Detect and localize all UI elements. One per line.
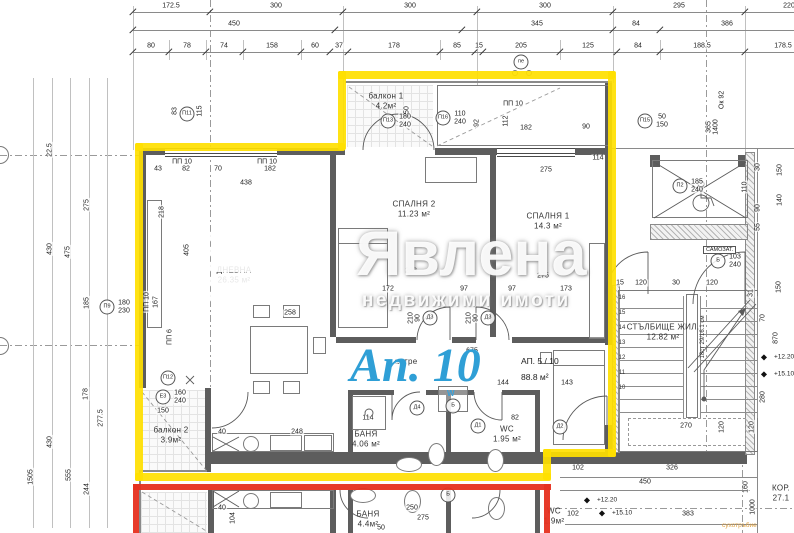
- yellow-outline-segment: [338, 71, 615, 79]
- dim-label: 182: [519, 125, 533, 132]
- yellow-outline-segment: [608, 71, 616, 457]
- logo-bar: [203, 246, 329, 257]
- dim-label: 120: [705, 280, 719, 287]
- room-name: СПАЛНЯ 2: [393, 200, 436, 210]
- room-area: 12.82 м²: [627, 333, 700, 343]
- dim-label: 258: [283, 310, 297, 317]
- dim-label: 248: [290, 429, 304, 436]
- tag-circle: Б: [446, 399, 461, 414]
- tag-size: 240: [173, 398, 187, 405]
- red-outline-segment: [133, 484, 139, 533]
- room-label: WC1.95 м²: [493, 425, 521, 446]
- dim-label: 82: [181, 166, 191, 173]
- dim-label: 114: [591, 155, 604, 162]
- stair-step-number: 13: [619, 340, 626, 346]
- dim-line: [133, 52, 794, 53]
- dim-label: 140: [777, 193, 784, 207]
- logo-bar: [203, 276, 329, 287]
- self-closing-door-label: САМОЗАТ.: [703, 246, 736, 254]
- apartment-number-label: Ап. 10: [350, 338, 481, 393]
- stair-steps-note: 18ст 29/16.1 см: [700, 316, 706, 359]
- dashed-diagonal: [142, 492, 208, 532]
- dim-label: 60: [310, 43, 320, 50]
- elevation-marker-icon: ◆: [599, 509, 605, 518]
- dim-label: 78: [182, 43, 192, 50]
- dim-label: 102: [566, 511, 580, 518]
- tag-size: 90: [415, 313, 422, 323]
- dim-label: ПП 6: [167, 328, 174, 346]
- dim-label: 172.5: [161, 3, 181, 10]
- dim-label: 300: [538, 3, 552, 10]
- tag-circle: Д1: [471, 419, 486, 434]
- dim-label: 40: [217, 505, 227, 512]
- fridge-cross: [213, 437, 239, 451]
- dim-label: 31: [748, 288, 755, 298]
- dim-label: 220: [782, 3, 794, 10]
- stair-step-number: 16: [619, 295, 626, 301]
- stair-step-number: 12: [619, 355, 626, 361]
- dim-label: 167: [153, 295, 160, 309]
- stair-step-number: 14: [619, 325, 626, 331]
- dim-label: 102: [571, 465, 585, 472]
- dim-label: 43: [153, 166, 163, 173]
- dim-label: 22.5: [47, 142, 54, 158]
- room-label: БАНЯ4.06 м²: [352, 430, 380, 451]
- watermark-brand: Явлена: [356, 218, 587, 290]
- tag-circle: Д2: [553, 420, 568, 435]
- elevation-marker-icon: ◆: [761, 353, 767, 362]
- dim-label: 112: [503, 114, 510, 127]
- dim-label: 1000: [750, 498, 757, 516]
- tag-size: 185: [690, 179, 704, 186]
- yellow-outline-segment: [135, 143, 143, 481]
- room-name: WC: [493, 425, 521, 435]
- dim-label: 15: [474, 43, 484, 50]
- yavlena-logo: [203, 231, 329, 306]
- room-area: 4.06 м²: [352, 440, 380, 450]
- dim-label: 185: [84, 296, 91, 310]
- logo-bar: [203, 231, 329, 242]
- room-label: СТЪЛБИЩЕ ЖИЛ.12.82 м²: [627, 323, 700, 344]
- dim-label: 55: [755, 222, 762, 232]
- dim-label: 295: [672, 3, 686, 10]
- dim-label: 326: [665, 465, 679, 472]
- elevation-label: +12.20: [774, 354, 794, 361]
- dim-label: 74: [219, 43, 229, 50]
- dim-label: 70: [213, 166, 223, 173]
- tag-circle: Д3: [423, 311, 438, 326]
- logo-bar: [203, 291, 329, 302]
- dim-label: 1505: [28, 468, 35, 486]
- dim-label: 365: [706, 120, 713, 134]
- dim-label: 188.5: [692, 43, 712, 50]
- unit-area-label: 88.8 м²: [521, 372, 549, 382]
- elevation-marker-icon: ◆: [761, 370, 767, 379]
- tag-size: 230: [117, 308, 131, 315]
- floor-plan-canvas: Явлена недвижими имоти Ап. 10 АП. 5 / 10…: [0, 0, 794, 533]
- stair-arrow-start: [702, 397, 706, 401]
- tag-size: 240: [690, 187, 704, 194]
- elevation-label: +12.20: [597, 497, 617, 504]
- dim-label: 182: [263, 166, 277, 173]
- door-arc: [212, 392, 248, 428]
- wheelchair-icon: [693, 181, 714, 211]
- yellow-outline-segment: [135, 473, 551, 481]
- dim-label: 270: [679, 423, 693, 430]
- dim-label: 110: [742, 180, 749, 193]
- dim-label: 120: [749, 420, 756, 434]
- dim-label: 84: [633, 43, 643, 50]
- yellow-outline-segment: [338, 71, 346, 150]
- tag-circle: П11: [180, 107, 195, 122]
- dim-label: 250: [405, 505, 419, 512]
- unit-code-label: АП. 5 / 10: [521, 356, 559, 366]
- dim-label: 300: [269, 3, 283, 10]
- dim-label: 178.5: [773, 43, 793, 50]
- dim-label: Ок 92: [719, 90, 726, 110]
- room-name: балкон 2: [153, 426, 188, 436]
- dim-line: [560, 477, 757, 478]
- stair-step-number: 15: [619, 310, 626, 316]
- dim-label: 405: [184, 243, 191, 257]
- dim-label: 300: [403, 3, 417, 10]
- tag-size: 240: [453, 119, 467, 126]
- dry-riser-label: сухотръбие: [722, 522, 757, 529]
- elevation-label: +15.10: [612, 510, 632, 517]
- dim-label: 120: [634, 280, 648, 287]
- room-label: БАНЯ4.4м²: [356, 510, 379, 531]
- tag-circle: Е3: [156, 390, 171, 405]
- dim-label: 40: [217, 429, 227, 436]
- dim-label: 280: [760, 390, 767, 404]
- tag-circle: П9: [100, 300, 115, 315]
- stair-step-number: 11: [619, 370, 625, 376]
- dim-label: 555: [66, 468, 73, 482]
- yellow-outline-segment: [135, 143, 345, 151]
- red-outline-segment: [133, 484, 551, 490]
- dim-label: 870: [773, 331, 780, 345]
- dim-label: 83: [172, 106, 179, 116]
- elevation-label: +15.10: [774, 371, 794, 378]
- dim-label: 438: [239, 180, 253, 187]
- tag-size: 160: [173, 390, 187, 397]
- tag-size: 180: [117, 300, 131, 307]
- entrance-door-arc: [563, 396, 607, 440]
- dim-label: 275: [416, 515, 430, 522]
- room-area: 27.1: [772, 494, 790, 504]
- tag-circle: Д3: [481, 311, 496, 326]
- dim-label: 275: [539, 167, 553, 174]
- tag-circle: Б: [711, 254, 726, 269]
- dim-label: 104: [230, 511, 237, 525]
- red-outline-segment: [544, 484, 550, 533]
- logo-bar: [203, 261, 329, 272]
- dim-label: 244: [84, 482, 91, 496]
- room-name: балкон 1: [368, 92, 403, 102]
- tag-size: 50: [657, 114, 667, 121]
- dim-label: 150: [156, 408, 170, 415]
- dim-label: 37: [334, 43, 344, 50]
- tag-size: 180: [398, 114, 412, 121]
- dim-label: 15: [615, 280, 625, 287]
- room-name: КОР.: [772, 484, 790, 494]
- stair-step-number: 10: [619, 385, 626, 391]
- room-label: балкон 23.9м²: [153, 426, 188, 447]
- dim-label: 218: [159, 205, 166, 219]
- tag-size: 103: [728, 254, 742, 261]
- dim-label: 90: [581, 124, 591, 131]
- tag-circle: Д4: [410, 401, 425, 416]
- tag-size: 110: [453, 111, 466, 118]
- dim-label: 1400: [713, 118, 720, 136]
- room-label: балкон 14.2м²: [368, 92, 403, 113]
- dim-label: 143: [560, 380, 574, 387]
- dim-label: 178: [83, 387, 90, 401]
- dim-label: 30: [671, 280, 681, 287]
- room-label: КОР.27.1: [772, 484, 790, 505]
- elevation-marker-icon: ◆: [584, 496, 590, 505]
- room-area: 4.4м²: [356, 520, 379, 530]
- dim-label: 430: [47, 435, 54, 449]
- dim-label: ПП 10: [256, 159, 278, 166]
- room-name: БАНЯ: [352, 430, 380, 440]
- dim-label: 144: [496, 380, 510, 387]
- room-area: 1.95 м²: [493, 435, 521, 445]
- yellow-outline-segment: [543, 449, 616, 457]
- tag-circle: П12: [161, 371, 176, 386]
- dim-label: 450: [227, 21, 241, 28]
- dim-label: 70: [760, 313, 767, 323]
- dim-label: ПП 10: [144, 291, 151, 313]
- tag-circle: П13: [381, 114, 396, 129]
- dim-label: 150: [777, 163, 784, 177]
- door-arc: [474, 392, 502, 420]
- dim-label: 158: [265, 43, 279, 50]
- dim-label: 450: [638, 479, 652, 486]
- dim-label: 125: [581, 43, 595, 50]
- room-area: 3.9м²: [153, 436, 188, 446]
- dim-label: 345: [530, 21, 544, 28]
- watermark-tagline: недвижими имоти: [362, 290, 571, 312]
- dim-label: 475: [65, 245, 72, 259]
- dim-label: 178: [387, 43, 401, 50]
- dim-line: [560, 490, 750, 491]
- tag-size: 210: [408, 311, 415, 325]
- tag-size: 150: [655, 122, 669, 129]
- room-area: 4.2м²: [368, 102, 403, 112]
- dim-label: 84: [631, 21, 641, 28]
- dim-label: 386: [720, 21, 734, 28]
- dim-label: 114: [361, 415, 374, 422]
- dim-label: 275: [84, 198, 91, 212]
- dim-label: 30: [755, 162, 762, 172]
- dim-label: 150: [776, 280, 783, 294]
- dim-label: ПП 10: [502, 101, 524, 108]
- tag-circle: пе: [514, 55, 529, 70]
- dim-label: 82: [510, 415, 520, 422]
- dim-label: 90: [755, 203, 762, 213]
- dim-label: 85: [452, 43, 462, 50]
- tag-size: 240: [398, 122, 412, 129]
- tag-circle: П2: [673, 179, 688, 194]
- dim-label: ПП 10: [171, 159, 193, 166]
- door-arc: [472, 490, 500, 518]
- dim-label: 383: [681, 511, 695, 518]
- room-name: СТЪЛБИЩЕ ЖИЛ.: [627, 323, 700, 333]
- dim-line: [133, 30, 794, 31]
- tag-size: 210: [466, 311, 473, 325]
- dim-label: 115: [197, 104, 204, 117]
- dim-label: 430: [47, 242, 54, 256]
- tag-circle: П16: [436, 111, 451, 126]
- dim-label: 277.5: [98, 408, 105, 428]
- dim-label: 92: [474, 118, 481, 128]
- dim-line: [133, 12, 794, 13]
- room-name: БАНЯ: [356, 510, 379, 520]
- tag-circle: П15: [638, 114, 653, 129]
- tag-size: 240: [728, 262, 742, 269]
- dim-label: 120: [719, 420, 726, 434]
- tag-size: 90: [473, 313, 480, 323]
- dim-label: 205: [514, 43, 528, 50]
- dim-label: 160: [743, 480, 750, 494]
- dim-label: 80: [146, 43, 156, 50]
- x-marker: [186, 376, 194, 384]
